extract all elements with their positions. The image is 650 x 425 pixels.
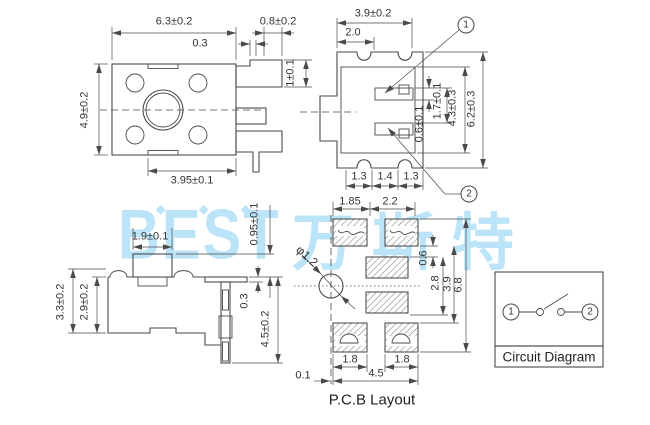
dim-front-pitch-a: 1.3 bbox=[351, 172, 366, 183]
dim-pcb-total-span: 6.8 bbox=[454, 277, 465, 292]
dim-top-step: 0.3 bbox=[192, 39, 207, 50]
dim-side-total-height: 4.5±0.2 bbox=[261, 311, 272, 348]
dim-front-pitch-c: 1.3 bbox=[403, 172, 418, 183]
dim-pcb-pad-a: 1.8 bbox=[342, 355, 357, 366]
dim-top-pitch: 3.95±0.1 bbox=[171, 176, 214, 187]
pcb-layout-drawing bbox=[294, 202, 471, 385]
dim-pcb-pad-width: 1.85 bbox=[339, 197, 360, 208]
pcb-layout-title: P.C.B Layout bbox=[329, 393, 415, 408]
dim-top-width: 6.3±0.2 bbox=[156, 17, 193, 28]
dim-front-17: 1.7±0.1 bbox=[433, 83, 444, 120]
dim-top-height: 4.9±0.2 bbox=[80, 92, 91, 129]
dim-side-lead-thickness: 0.3 bbox=[240, 293, 251, 308]
dim-pcb-width: 4.5 bbox=[368, 369, 383, 380]
pin-2-callout: 2 bbox=[461, 186, 478, 203]
dim-front-43: 4.3±0.3 bbox=[448, 90, 459, 127]
dim-pcb-offset: 0.1 bbox=[295, 371, 310, 382]
dim-front-button-width: 2.0 bbox=[345, 28, 360, 39]
dim-pcb-mid-span: 2.8 bbox=[431, 275, 442, 290]
dim-front-06: 0.6±0.1 bbox=[415, 106, 426, 143]
front-view-drawing bbox=[300, 18, 488, 194]
dim-top-lead-height: 1±0.1 bbox=[286, 59, 297, 86]
pin-1-callout: 1 bbox=[458, 17, 475, 34]
technical-drawing-sheet: BEST ◆ ◆ ◆ 万斯特 bbox=[0, 0, 650, 425]
dim-top-lead-gap: 0.8±0.2 bbox=[260, 17, 297, 28]
dim-pcb-pad-b: 1.8 bbox=[394, 355, 409, 366]
dim-front-pitch-b: 1.4 bbox=[377, 172, 392, 183]
circuit-pin-1: 1 bbox=[503, 304, 520, 321]
circuit-pin-2: 2 bbox=[582, 304, 599, 321]
dim-pcb-pad-spacing: 2.2 bbox=[382, 197, 397, 208]
dim-side-button-width: 1.9±0.1 bbox=[132, 232, 169, 243]
dim-front-62: 6.2±0.3 bbox=[467, 91, 478, 128]
dim-side-height-outer: 3.3±0.2 bbox=[56, 284, 67, 321]
dim-pcb-gap: 0.6 bbox=[419, 250, 430, 265]
dim-front-width: 3.9±0.2 bbox=[355, 9, 392, 20]
dim-side-button-height: 0.95±0.1 bbox=[250, 203, 261, 246]
dim-side-height: 2.9±0.2 bbox=[80, 284, 91, 321]
circuit-diagram-title: Circuit Diagram bbox=[502, 350, 595, 364]
